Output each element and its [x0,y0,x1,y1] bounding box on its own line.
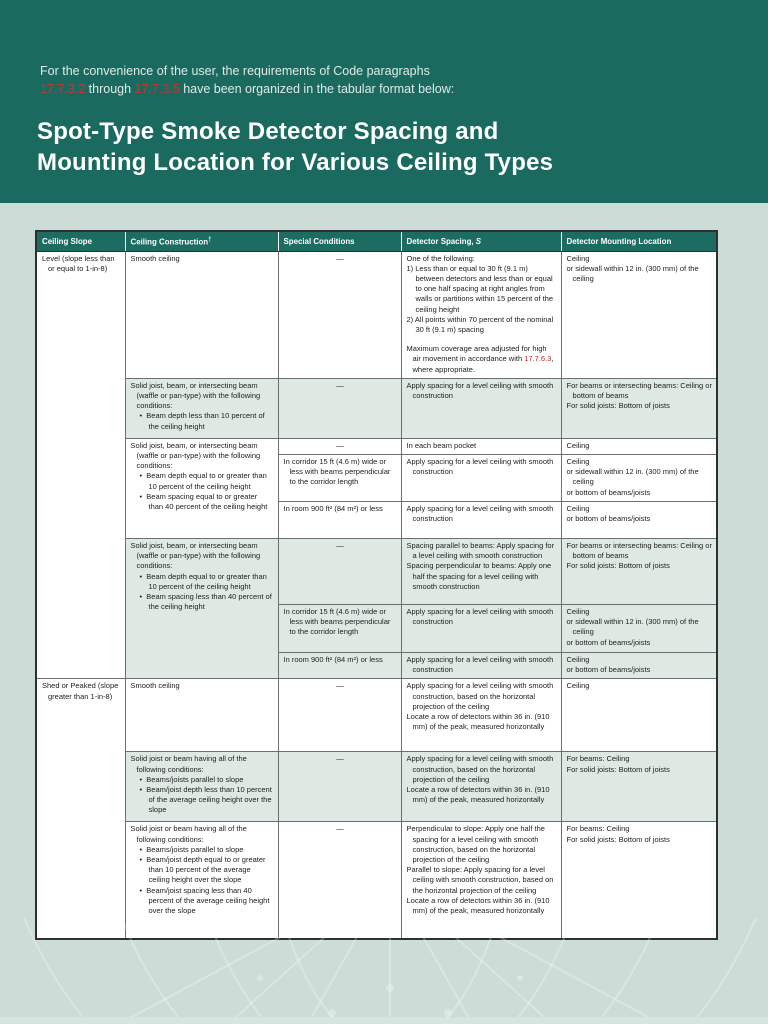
cell-text: For solid joists: Bottom of joists [567,835,713,845]
cell-text: Apply spacing for a level ceiling with s… [407,754,557,785]
footnote-dagger: † [208,237,211,243]
cell-spacing: Apply spacing for a level ceiling with s… [401,378,561,438]
cell-text: Level (slope less than or equal to 1-in-… [42,254,121,274]
cell-special: — [278,679,401,752]
cell-special: — [278,378,401,438]
cell-text: Perpendicular to slope: Apply one half t… [407,824,557,865]
cell-text: For beams: Ceiling [567,754,713,764]
code-ref-link[interactable]: 17.7.3.2 [40,82,85,96]
cell-text: Ceiling [567,655,713,665]
intro-line-1: For the convenience of the user, the req… [40,63,680,81]
cell-text: Solid joist or beam having all of the fo… [131,824,274,844]
bullet-item: Beams/joists parallel to slope [131,775,274,785]
cell-text: Parallel to slope: Apply spacing for a l… [407,865,557,896]
cell-construction: Solid joist or beam having all of the fo… [125,752,278,822]
code-ref-link[interactable]: 17.7.6.3 [524,354,551,363]
cell-spacing: In each beam pocket [401,438,561,454]
cell-text: Locate a row of detectors within 36 in. … [407,712,557,732]
cell-mounting: Ceilingor bottom of beams/joists [561,501,717,538]
cell-text: Apply spacing for a level ceiling with s… [407,655,557,675]
cell-text: — [284,754,397,764]
code-ref-link[interactable]: 17.7.3.5 [135,82,180,96]
detector-spacing-table: Ceiling SlopeCeiling Construction†Specia… [35,230,718,940]
table-row: Solid joist, beam, or intersecting beam … [36,378,717,438]
cell-construction: Solid joist, beam, or intersecting beam … [125,438,278,538]
cell-text: In room 900 ft² (84 m²) or less [284,655,397,665]
cell-special: In corridor 15 ft (4.6 m) wide or less w… [278,454,401,501]
intro-paragraph: For the convenience of the user, the req… [40,63,680,98]
cell-text: or sidewall within 12 in. (300 mm) of th… [567,467,713,487]
page-title: Spot-Type Smoke Detector Spacing and Mou… [37,116,737,178]
cell-text: Apply spacing for a level ceiling with s… [407,681,557,712]
cell-text: Solid joist or beam having all of the fo… [131,754,274,774]
cell-text: Locate a row of detectors within 36 in. … [407,785,557,805]
cell-text: Ceiling [567,254,713,264]
cell-text: Apply spacing for a level ceiling with s… [407,607,557,627]
cell-text: Apply spacing for a level ceiling with s… [407,504,557,524]
cell-spacing: Apply spacing for a level ceiling with s… [401,454,561,501]
table-row: Solid joist or beam having all of the fo… [36,752,717,822]
cell-text: Spacing parallel to beams: Apply spacing… [407,541,557,561]
cell-text: Apply spacing for a level ceiling with s… [407,381,557,401]
table-row: Solid joist or beam having all of the fo… [36,822,717,939]
cell-special: — [278,822,401,939]
cell-construction: Smooth ceiling [125,679,278,752]
bullet-item: Beam depth equal to or greater than 10 p… [131,572,274,592]
cell-text: For beams or intersecting beams: Ceiling… [567,541,713,561]
cell-special: In corridor 15 ft (4.6 m) wide or less w… [278,604,401,652]
cell-text: For beams: Ceiling [567,824,713,834]
cell-text: 1) Less than or equal to 30 ft (9.1 m) b… [407,264,557,315]
cell-construction: Solid joist, beam, or intersecting beam … [125,538,278,678]
cell-construction: Smooth ceiling [125,251,278,378]
cell-special: — [278,752,401,822]
cell-text: In each beam pocket [407,441,557,451]
cell-text: — [284,541,397,551]
cell-text: — [284,254,397,264]
cell-text: — [284,381,397,391]
intro-line-2: 17.7.3.2 through 17.7.3.5 have been orga… [40,81,680,99]
table-row: Solid joist, beam, or intersecting beam … [36,538,717,604]
cell-text: Solid joist, beam, or intersecting beam … [131,381,274,412]
cell-text: Spacing perpendicular to beams: Apply on… [407,561,557,592]
bullet-item: Beam/joist spacing less than 40 percent … [131,886,274,917]
cell-mounting: For beams or intersecting beams: Ceiling… [561,538,717,604]
cell-text: Ceiling [567,681,713,691]
column-header-mounting: Detector Mounting Location [561,231,717,251]
cell-spacing: Apply spacing for a level ceiling with s… [401,679,561,752]
page-title-line-1: Spot-Type Smoke Detector Spacing and [37,116,737,147]
cell-text: or bottom of beams/joists [567,488,713,498]
cell-construction: Solid joist, beam, or intersecting beam … [125,378,278,438]
cell-spacing: Apply spacing for a level ceiling with s… [401,752,561,822]
column-header-construction: Ceiling Construction† [125,231,278,251]
cell-text: or bottom of beams/joists [567,665,713,675]
cell-special: — [278,438,401,454]
cell-mounting: Ceiling [561,679,717,752]
cell-special: In room 900 ft² (84 m²) or less [278,652,401,678]
cell-text: Solid joist, beam, or intersecting beam … [131,441,274,472]
bullet-item: Beam spacing equal to or greater than 40… [131,492,274,512]
cell-mounting: Ceilingor bottom of beams/joists [561,652,717,678]
cell-text: Smooth ceiling [131,681,274,691]
cell-spacing: Spacing parallel to beams: Apply spacing… [401,538,561,604]
cell-slope: Shed or Peaked (slope greater than 1-in-… [36,679,125,939]
cell-text: Smooth ceiling [131,254,274,264]
cell-text: In corridor 15 ft (4.6 m) wide or less w… [284,457,397,488]
cell-text: Apply spacing for a level ceiling with s… [407,457,557,477]
cell-mounting: Ceilingor sidewall within 12 in. (300 mm… [561,454,717,501]
cell-text: — [284,441,397,451]
table-header-row: Ceiling SlopeCeiling Construction†Specia… [36,231,717,251]
cell-special: — [278,251,401,378]
cell-text: or sidewall within 12 in. (300 mm) of th… [567,617,713,637]
bullet-item: Beam/joist depth equal to or greater tha… [131,855,274,886]
column-header-slope: Ceiling Slope [36,231,125,251]
page-title-line-2: Mounting Location for Various Ceiling Ty… [37,147,737,178]
cell-mounting: Ceilingor sidewall within 12 in. (300 mm… [561,251,717,378]
cell-text: Ceiling [567,441,713,451]
cell-mounting: For beams or intersecting beams: Ceiling… [561,378,717,438]
column-header-special: Special Conditions [278,231,401,251]
column-header-spacing: Detector Spacing, S [401,231,561,251]
cell-text: — [284,681,397,691]
cell-special: — [278,538,401,604]
cell-slope: Level (slope less than or equal to 1-in-… [36,251,125,679]
cell-text: Ceiling [567,607,713,617]
cell-text: or bottom of beams/joists [567,514,713,524]
bullet-item: Beam depth equal to or greater than 10 p… [131,471,274,491]
cell-mounting: Ceilingor sidewall within 12 in. (300 mm… [561,604,717,652]
cell-text: Ceiling [567,457,713,467]
cell-spacing: Apply spacing for a level ceiling with s… [401,604,561,652]
cell-text: or sidewall within 12 in. (300 mm) of th… [567,264,713,284]
cell-text: For solid joists: Bottom of joists [567,765,713,775]
cell-special: In room 900 ft² (84 m²) or less [278,501,401,538]
cell-text: For solid joists: Bottom of joists [567,561,713,571]
cell-spacing: One of the following:1) Less than or equ… [401,251,561,378]
cell-text: — [284,824,397,834]
cell-spacing: Apply spacing for a level ceiling with s… [401,652,561,678]
cell-text: or bottom of beams/joists [567,638,713,648]
cell-text: Maximum coverage area adjusted for high … [407,344,557,375]
cell-text: One of the following: [407,254,557,264]
cell-mounting: Ceiling [561,438,717,454]
cell-text: Shed or Peaked (slope greater than 1-in-… [42,681,121,701]
cell-text: Locate a row of detectors within 36 in. … [407,896,557,916]
cell-text: In corridor 15 ft (4.6 m) wide or less w… [284,607,397,638]
bullet-item: Beam spacing less than 40 percent of the… [131,592,274,612]
cell-spacing: Perpendicular to slope: Apply one half t… [401,822,561,939]
cell-text: 2) All points within 70 percent of the n… [407,315,557,335]
cell-text: Solid joist, beam, or intersecting beam … [131,541,274,572]
document-page: For the convenience of the user, the req… [0,0,768,1024]
bullet-item: Beams/joists parallel to slope [131,845,274,855]
table-row: Solid joist, beam, or intersecting beam … [36,438,717,454]
table-row: Level (slope less than or equal to 1-in-… [36,251,717,378]
cell-text: In room 900 ft² (84 m²) or less [284,504,397,514]
cell-mounting: For beams: CeilingFor solid joists: Bott… [561,822,717,939]
cell-mounting: For beams: CeilingFor solid joists: Bott… [561,752,717,822]
bullet-item: Beam depth less than 10 percent of the c… [131,411,274,431]
page-bottom-edge [0,1017,768,1024]
table-body: Level (slope less than or equal to 1-in-… [36,251,717,939]
cell-text: For solid joists: Bottom of joists [567,401,713,411]
cell-text: Ceiling [567,504,713,514]
bullet-item: Beam/joist depth less than 10 percent of… [131,785,274,816]
cell-text: For beams or intersecting beams: Ceiling… [567,381,713,401]
cell-construction: Solid joist or beam having all of the fo… [125,822,278,939]
table-row: Shed or Peaked (slope greater than 1-in-… [36,679,717,752]
cell-spacing: Apply spacing for a level ceiling with s… [401,501,561,538]
